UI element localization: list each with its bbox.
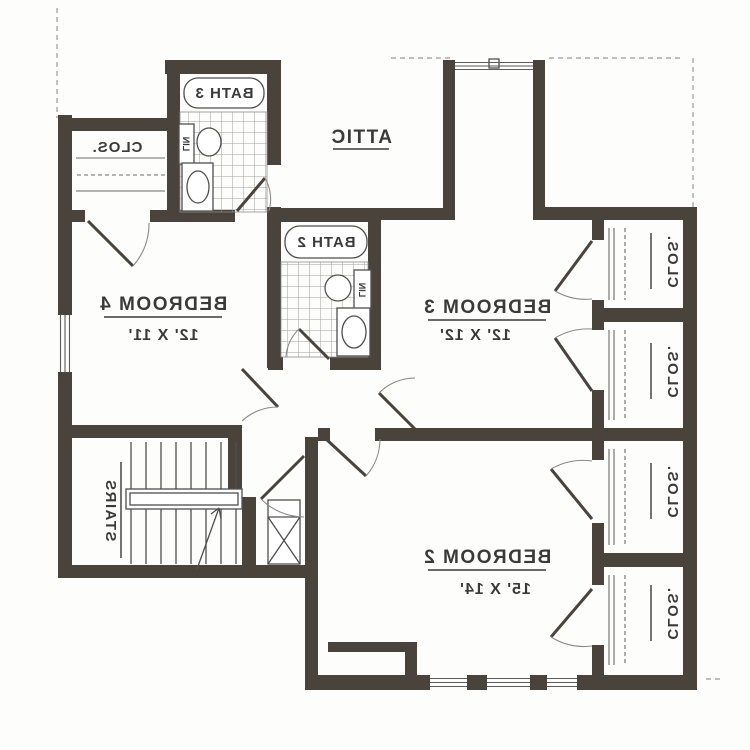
toilet-icon: [197, 128, 221, 156]
bedroom4-dims: 12' X 11': [128, 327, 199, 344]
bath2-label-plate: BATH 2: [285, 226, 367, 258]
bedroom3-dims: 12' X 12': [439, 327, 511, 344]
bedroom3-door: [379, 378, 415, 429]
bath2-linen-label: LIN: [357, 283, 367, 298]
floor-plan-scan: ATTIC BATH 3 BATH 2 BEDROOM 3 12' X 12' …: [0, 0, 750, 750]
closet-a-label: CLOS.: [664, 234, 681, 287]
bedroom2-door: [326, 439, 380, 476]
closet-a-door: [555, 241, 592, 299]
closet-d-label: CLOS.: [664, 586, 681, 639]
closet-tl-label: CLOS.: [92, 139, 143, 156]
floor-plan-svg: ATTIC BATH 3 BATH 2 BEDROOM 3 12' X 12' …: [0, 0, 750, 750]
bath2-label: BATH 2: [296, 234, 355, 251]
sink-icon: [342, 316, 366, 348]
closet-b-door: [555, 329, 592, 391]
bedroom2-label: BEDROOM 2: [423, 547, 552, 568]
closet-b-label: CLOS.: [664, 344, 681, 397]
bedroom4-door: [242, 369, 278, 421]
stairs-label: STAIRS: [102, 479, 119, 542]
attic-label: ATTIC: [330, 127, 392, 148]
bath3-linen-label: LIN: [181, 137, 191, 152]
bedroom4-window: [58, 315, 72, 372]
stairs-area: [126, 442, 242, 569]
bedroom2-windows: [430, 675, 577, 690]
walls: [58, 60, 697, 690]
dormer-window: [455, 59, 533, 72]
stair-direction-arrow: [197, 508, 221, 569]
bedroom3-label: BEDROOM 3: [423, 297, 552, 318]
closet-c-door: [551, 460, 592, 519]
bath3-label-plate: BATH 3: [184, 78, 264, 108]
closet-d-door: [551, 589, 592, 646]
mirrored-plan-wrapper: ATTIC BATH 3 BATH 2 BEDROOM 3 12' X 12' …: [0, 0, 750, 750]
toilet-icon: [325, 275, 351, 301]
closet-c-label: CLOS.: [664, 464, 681, 517]
bedroom4-label: BEDROOM 4: [99, 294, 228, 315]
bath3-label: BATH 3: [194, 85, 253, 102]
closet-tl-door: [88, 221, 149, 266]
chase-box: [268, 500, 300, 564]
bedroom2-dims: 15' X 14': [459, 581, 531, 598]
stair-handrail: [126, 489, 242, 509]
sink-icon: [187, 171, 209, 203]
